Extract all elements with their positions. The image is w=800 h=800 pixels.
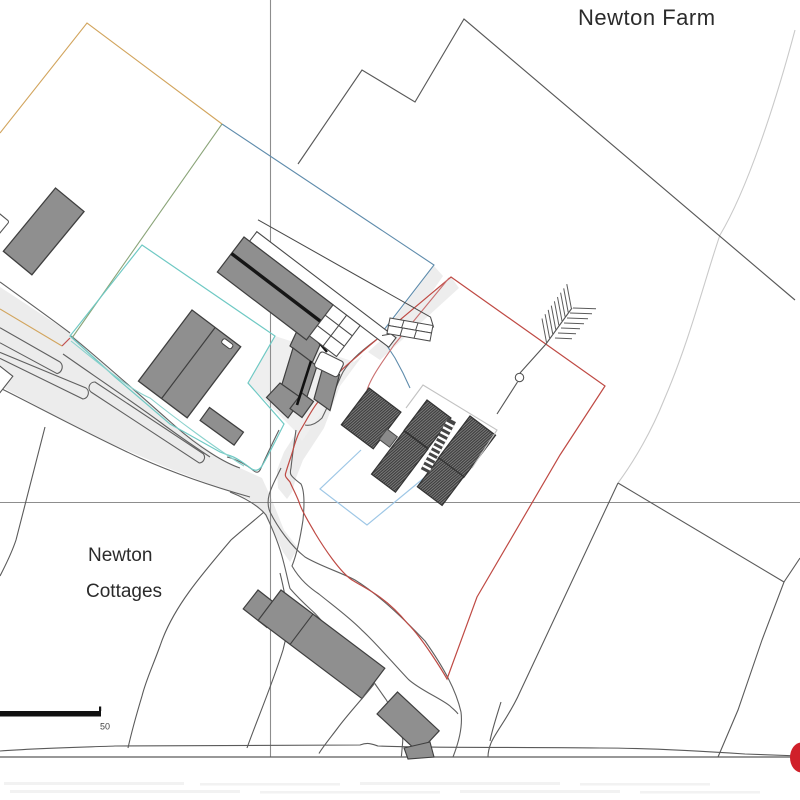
- svg-text:Newton: Newton: [88, 545, 152, 566]
- svg-text:Newton Farm: Newton Farm: [578, 5, 716, 30]
- svg-text:50: 50: [100, 722, 110, 732]
- svg-text:Cottages: Cottages: [86, 581, 162, 602]
